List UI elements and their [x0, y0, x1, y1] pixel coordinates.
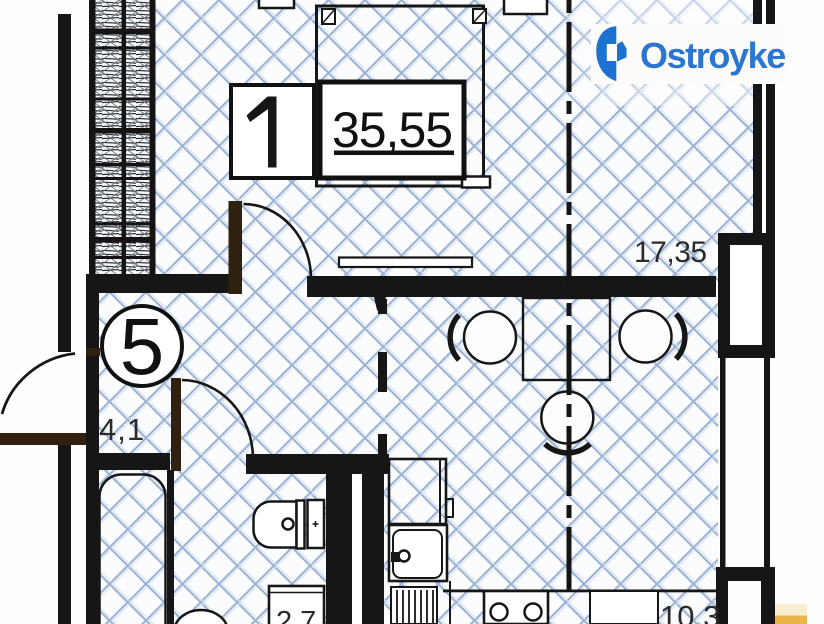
svg-text:5: 5: [120, 302, 165, 391]
svg-text:35,55: 35,55: [332, 102, 452, 158]
svg-text:17,35: 17,35: [634, 236, 707, 269]
svg-text:4,1: 4,1: [99, 412, 145, 447]
svg-text:Ostroyke: Ostroyke: [640, 35, 785, 76]
svg-text:10,3: 10,3: [660, 599, 720, 624]
svg-text:2,7: 2,7: [276, 606, 316, 624]
